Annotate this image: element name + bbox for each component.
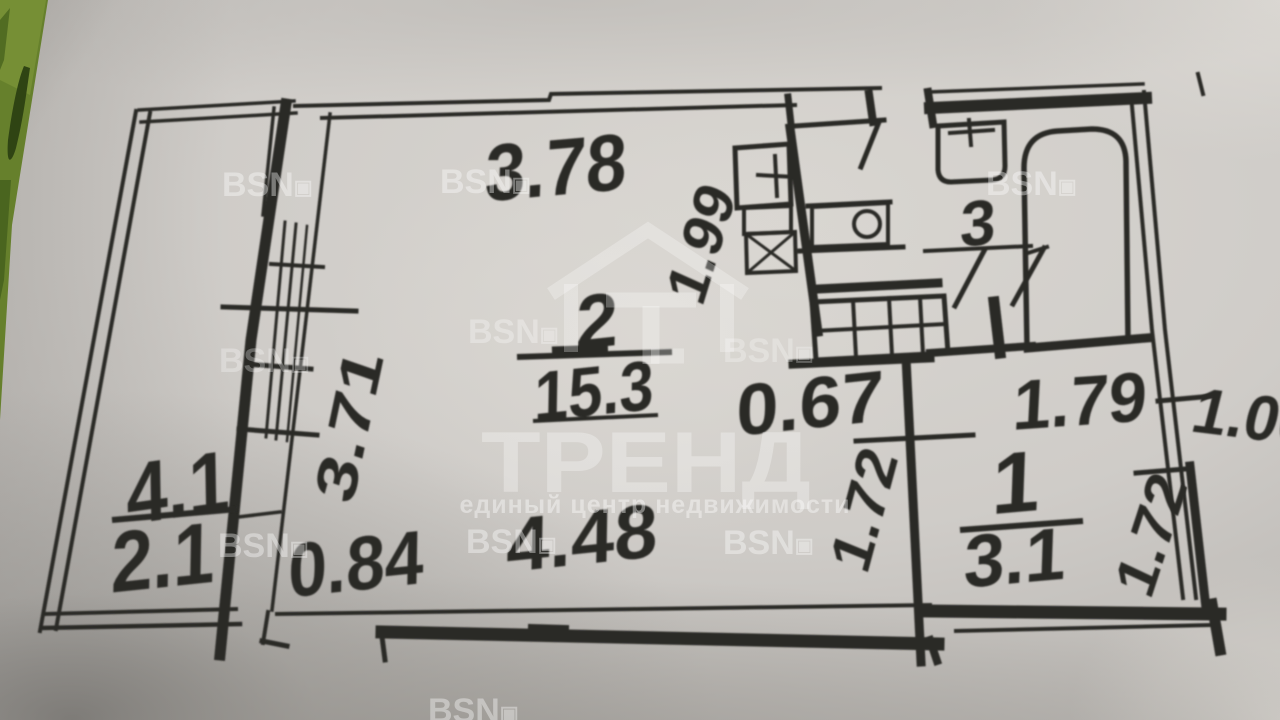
- svg-text:единый центр недвижимости: единый центр недвижимости: [459, 491, 850, 519]
- svg-text:1.79: 1.79: [1011, 356, 1149, 445]
- svg-text:0.84: 0.84: [288, 515, 425, 615]
- svg-text:2.1: 2.1: [110, 505, 215, 612]
- svg-text:3.1: 3.1: [963, 512, 1068, 604]
